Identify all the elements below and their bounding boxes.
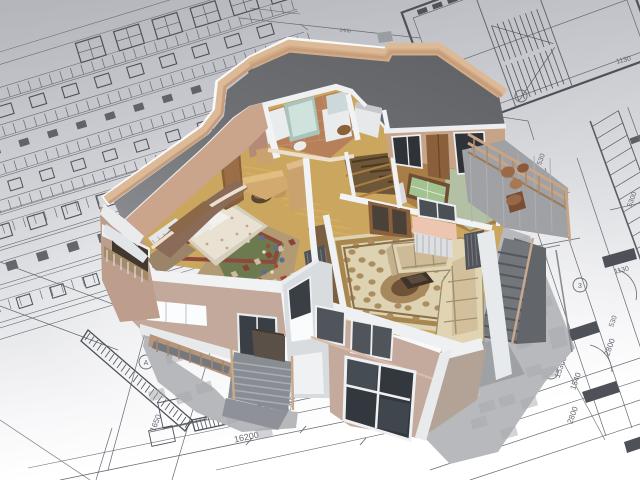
svg-text:A: A — [144, 360, 149, 367]
svg-text:3: 3 — [578, 283, 582, 290]
